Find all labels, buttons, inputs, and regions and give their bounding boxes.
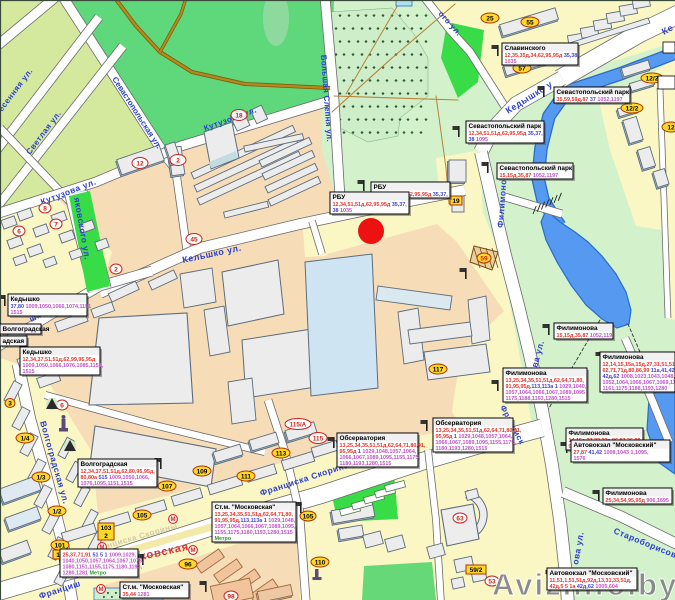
svg-text:37,80 1009,1050,1066,1074,1151: 37,80 1009,1050,1066,1074,1151	[11, 304, 92, 310]
svg-text:1576: 1576	[574, 456, 586, 462]
svg-text:Обсерватория: Обсерватория	[340, 434, 386, 442]
svg-text:63: 63	[456, 515, 464, 522]
svg-text:115/А: 115/А	[290, 422, 307, 429]
svg-text:Ст.м. "Московская": Ст.м. "Московская"	[215, 504, 276, 511]
svg-text:6: 6	[17, 228, 21, 235]
svg-text:Метро: Метро	[215, 536, 232, 542]
svg-text:Кедышко: Кедышко	[11, 296, 40, 303]
svg-text:1515: 1515	[23, 369, 35, 375]
svg-text:Славинского: Славинского	[505, 45, 546, 52]
svg-text:110: 110	[315, 559, 326, 566]
svg-text:Филимонова: Филимонова	[506, 370, 548, 377]
svg-text:Севастопольский парк: Севастопольский парк	[557, 88, 630, 96]
svg-text:107: 107	[162, 483, 173, 490]
svg-text:Филимонова: Филимонова	[557, 325, 599, 332]
svg-text:96: 96	[184, 561, 192, 568]
svg-text:7: 7	[54, 221, 58, 228]
svg-text:111: 111	[241, 473, 252, 480]
svg-text:2: 2	[114, 266, 118, 273]
svg-text:Севастопольский парк: Севастопольский парк	[469, 122, 542, 130]
svg-text:Автовокзал "Московский": Автовокзал "Московский"	[574, 441, 657, 449]
svg-text:М: М	[171, 517, 176, 523]
svg-text:Кедышко: Кедышко	[23, 349, 52, 356]
svg-text:6: 6	[60, 402, 64, 409]
svg-text:109: 109	[197, 468, 208, 475]
svg-text:1076,1095,1151,1515: 1076,1095,1151,1515	[81, 481, 133, 487]
svg-text:12/2: 12/2	[646, 75, 659, 82]
svg-text:98: 98	[227, 593, 235, 600]
svg-text:Севастопольский парк: Севастопольский парк	[500, 164, 573, 172]
svg-text:Филимонова: Филимонова	[606, 490, 648, 497]
svg-text:117: 117	[433, 366, 444, 373]
svg-text:45: 45	[190, 236, 198, 243]
svg-text:Филимонова: Филимонова	[603, 354, 645, 361]
svg-text:1009,1050,1066,1076,1085,1151,: 1009,1050,1066,1076,1085,1151,	[23, 363, 104, 369]
svg-text:1280,1281 Метро: 1280,1281 Метро	[63, 571, 107, 577]
svg-text:Обсерватория: Обсерватория	[436, 419, 482, 427]
svg-text:Волгоградская: Волгоградская	[3, 326, 50, 333]
svg-text:1180,1193,1280,1515: 1180,1193,1280,1515	[436, 446, 488, 452]
svg-text:3: 3	[8, 400, 12, 407]
svg-text:15,15д,35,87 1052,119: 15,15д,35,87 1052,119	[557, 333, 613, 339]
svg-text:59: 59	[480, 255, 488, 262]
svg-text:12: 12	[667, 124, 675, 131]
svg-text:РБУ: РБУ	[374, 184, 388, 191]
svg-text:42д,5 5 1а 42д,62 1005,604: 42д,5 5 1а 42д,62 1005,604	[550, 584, 618, 590]
svg-text:Автовокзал "Московский": Автовокзал "Московский"	[550, 569, 633, 577]
svg-text:М: М	[191, 548, 196, 554]
svg-text:105: 105	[137, 512, 148, 519]
svg-text:25,34,54,95,95д 906,1695: 25,34,54,95,95д 906,1695	[606, 498, 669, 504]
svg-text:35,44 1281: 35,44 1281	[123, 592, 150, 598]
svg-text:Ст.м. "Московская": Ст.м. "Московская"	[123, 584, 184, 591]
svg-text:35,59,59д,87 37 1052,1197: 35,59,59д,87 37 1052,1197	[557, 97, 623, 103]
svg-text:М: М	[99, 587, 104, 593]
svg-text:15,15д,35,87 1052,1197: 15,15д,35,87 1052,1197	[500, 173, 559, 179]
svg-text:1175,1188,1193,1280,1515: 1175,1188,1193,1280,1515	[506, 396, 571, 402]
svg-text:1/4: 1/4	[20, 435, 29, 442]
svg-text:101: 101	[55, 542, 66, 549]
svg-text:25: 25	[486, 15, 494, 22]
svg-text:Филимонова: Филимонова	[569, 430, 611, 437]
svg-text:2: 2	[176, 157, 180, 164]
svg-text:105: 105	[303, 513, 314, 520]
svg-text:103: 103	[101, 525, 112, 532]
svg-text:1/3: 1/3	[36, 474, 45, 481]
svg-text:59/2: 59/2	[470, 567, 483, 574]
svg-text:2: 2	[104, 533, 108, 540]
svg-text:адская: адская	[3, 338, 25, 345]
svg-text:55: 55	[526, 19, 534, 26]
svg-text:1515: 1515	[11, 310, 23, 316]
svg-text:115: 115	[313, 435, 324, 442]
svg-text:19: 19	[452, 198, 460, 205]
svg-text:1035: 1035	[505, 59, 517, 65]
svg-text:1/2: 1/2	[52, 508, 61, 515]
svg-text:38 1095: 38 1095	[469, 137, 489, 143]
svg-text:РБУ: РБУ	[333, 194, 347, 201]
svg-text:38 1035: 38 1035	[333, 208, 353, 214]
svg-text:1180,1193,1280,1515: 1180,1193,1280,1515	[340, 461, 392, 467]
svg-text:12/2: 12/2	[626, 105, 639, 112]
svg-text:1161,1175,1188,1193,1280: 1161,1175,1188,1193,1280	[603, 386, 668, 392]
svg-text:113: 113	[276, 450, 287, 457]
svg-text:12: 12	[136, 160, 144, 167]
svg-text:8: 8	[43, 205, 47, 212]
svg-text:18: 18	[235, 112, 243, 119]
svg-text:Волгоградская: Волгоградская	[81, 461, 128, 468]
